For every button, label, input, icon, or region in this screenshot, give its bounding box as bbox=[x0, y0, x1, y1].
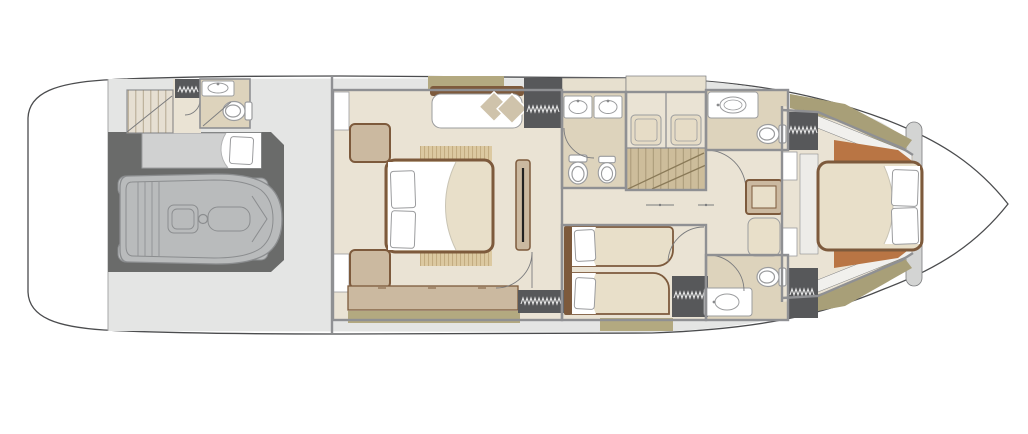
shower-cabinets bbox=[626, 76, 706, 92]
vip-aft-wardrobe bbox=[518, 290, 564, 313]
crew-toilet bbox=[223, 102, 252, 121]
master-vanity-seat bbox=[748, 218, 780, 256]
main-staircase bbox=[626, 148, 706, 190]
vip-sink-basin-2 bbox=[599, 101, 617, 114]
vip-sink-basin-1 bbox=[569, 101, 587, 114]
vip-wardrobe bbox=[524, 78, 562, 128]
hull-shelf-vip-bottom bbox=[348, 311, 520, 323]
twin-pillow-1 bbox=[574, 229, 596, 261]
master-vanity-inner bbox=[752, 186, 776, 208]
vip-nightstand-top bbox=[350, 124, 390, 162]
fwd-stbd-faucet bbox=[713, 301, 716, 304]
master-side-cabinet-2 bbox=[782, 228, 797, 256]
vip-sink-faucet-2 bbox=[607, 100, 610, 103]
corridor-floor bbox=[562, 188, 706, 225]
corridor-threshold-2-dot bbox=[705, 204, 707, 206]
fwd-port-faucet bbox=[717, 104, 720, 107]
twin-headboard-trim bbox=[564, 226, 572, 315]
cabinet-strip-top bbox=[562, 78, 626, 92]
vip-low-cabinet bbox=[348, 286, 518, 310]
crew-berth bbox=[142, 133, 261, 168]
vip-side-cabinet-top bbox=[333, 92, 349, 130]
fwd-stbd-basin bbox=[715, 294, 739, 310]
floor-plan-canvas bbox=[0, 0, 1028, 434]
vip-sink-faucet-1 bbox=[577, 100, 580, 103]
tender-garage bbox=[108, 132, 284, 272]
vip-side-cabinet-bottom bbox=[333, 254, 349, 292]
tender-seat bbox=[208, 207, 250, 231]
vip-pillow-bottom bbox=[390, 211, 415, 249]
vip-nightstand-bottom bbox=[350, 250, 390, 288]
crew-sink-faucet bbox=[217, 83, 220, 86]
crew-berth-pillow bbox=[229, 136, 253, 164]
tender bbox=[118, 174, 282, 264]
crew-bathroom bbox=[200, 79, 252, 128]
vip-toilet bbox=[569, 155, 588, 184]
twin-pillow-2 bbox=[574, 277, 596, 309]
corridor-threshold-1-dot bbox=[659, 204, 661, 206]
master-side-cabinet-1 bbox=[782, 152, 797, 180]
master-pillow-bottom bbox=[891, 208, 918, 245]
vip-bidet bbox=[598, 156, 615, 183]
master-pillow-top bbox=[891, 170, 918, 207]
vip-pillow-top bbox=[390, 171, 415, 209]
master-bed-step bbox=[800, 154, 818, 254]
yacht-floor-plan bbox=[0, 0, 1028, 434]
